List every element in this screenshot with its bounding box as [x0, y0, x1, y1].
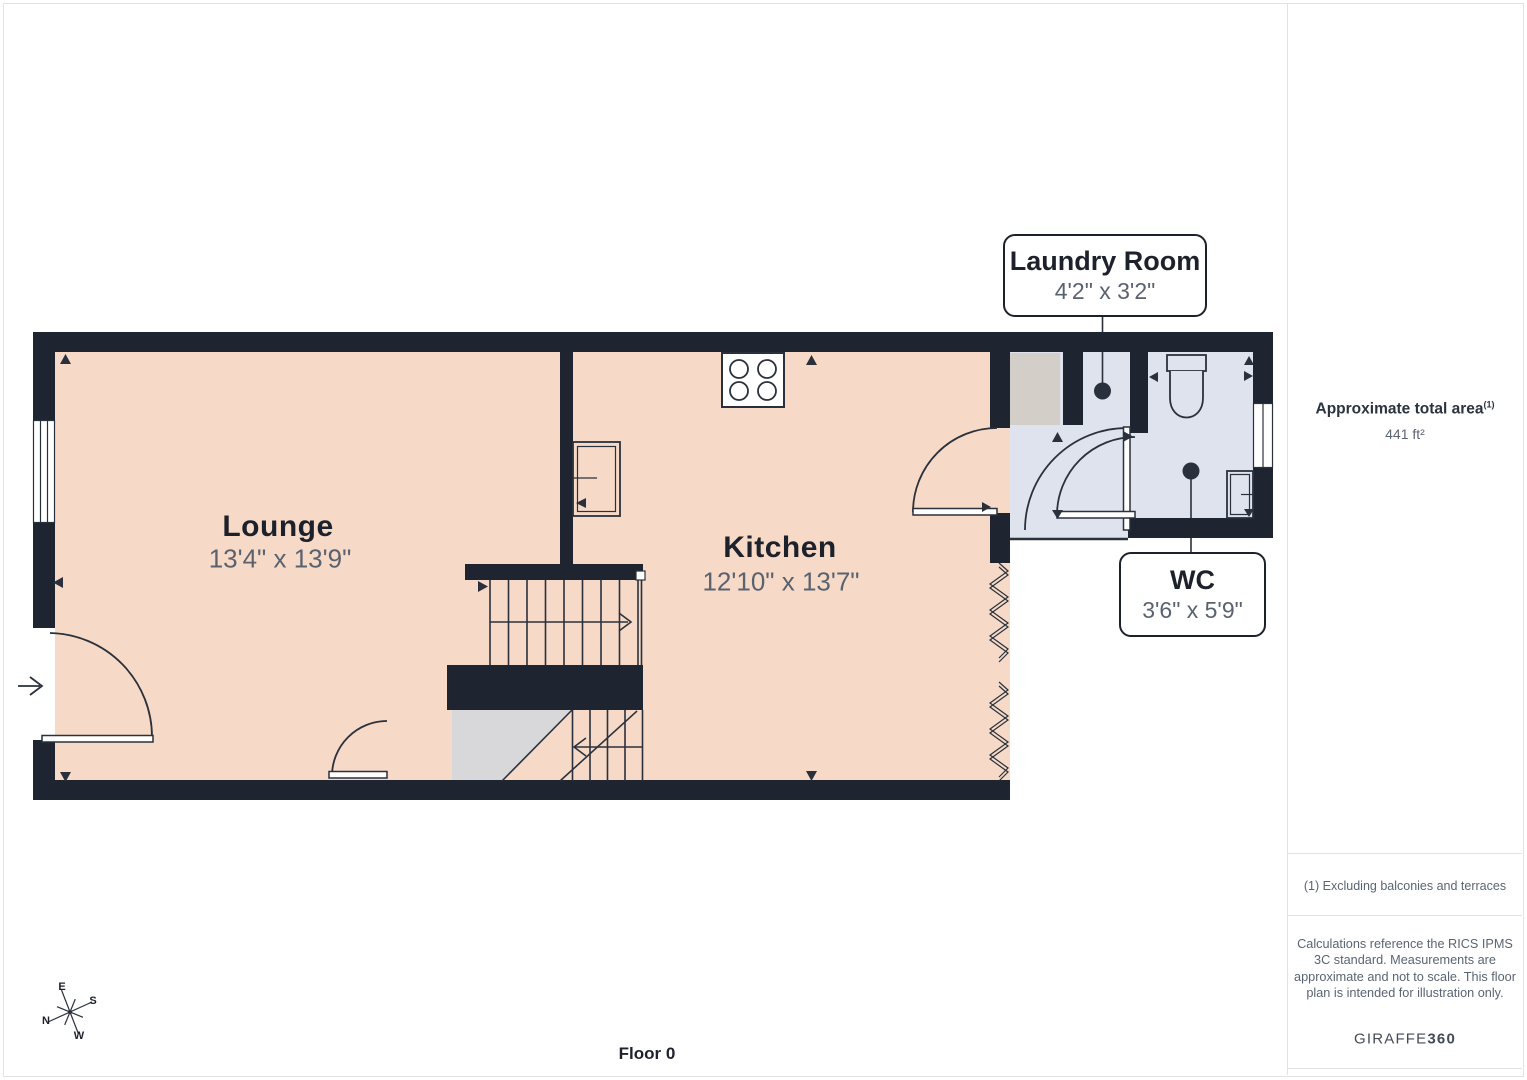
laundry-room-callout: Laundry Room 4'2" x 3'2"	[1003, 234, 1207, 317]
wall-kitchen-right-upper	[990, 332, 1010, 428]
compass-east-label: E	[58, 981, 65, 993]
laundry-room-callout-title: Laundry Room	[1010, 246, 1201, 277]
stove-icon	[722, 353, 784, 407]
compass-west-label: W	[74, 1030, 84, 1042]
laundry-room-callout-dimensions: 4'2" x 3'2"	[1055, 278, 1156, 305]
kitchen-label: Kitchen	[723, 531, 837, 565]
wall-laundry-left	[1063, 352, 1083, 425]
disclaimer: Calculations reference the RICS IPMS 3C …	[1294, 936, 1516, 1001]
wc-callout-dimensions: 3'6" x 5'9"	[1142, 597, 1243, 624]
compass-icon	[48, 990, 92, 1034]
wc-camera-dot	[1183, 463, 1200, 480]
window-right	[1254, 404, 1273, 468]
wall-left-upper	[33, 352, 55, 420]
area-value: 441 ft²	[1385, 426, 1425, 442]
wall-left-middle	[33, 523, 55, 628]
brand-logo: GIRAFFE360	[1354, 1031, 1456, 1048]
stair-notch	[636, 571, 645, 580]
kitchen-dimensions: 12'10" x 13'7"	[702, 567, 859, 598]
wc-callout: WC 3'6" x 5'9"	[1119, 552, 1266, 637]
laundry-camera-dot	[1094, 383, 1111, 400]
hallway-extension-fill	[1010, 518, 1128, 540]
compass-south-label: S	[89, 995, 96, 1007]
wall-stair-top	[465, 564, 643, 580]
lounge-label: Lounge	[222, 510, 333, 544]
wall-kitchen-right-stub	[990, 513, 1010, 563]
brand-name: GIRAFFE	[1354, 1031, 1427, 1048]
window-left	[34, 421, 55, 523]
brand-suffix: 360	[1427, 1031, 1456, 1048]
wall-laundry-right	[1130, 352, 1148, 433]
lounge-dimensions: 13'4" x 13'9"	[209, 544, 352, 575]
area-title-superscript: (1)	[1483, 399, 1494, 409]
stair-landing	[447, 665, 643, 710]
floor-plan-page: Lounge 13'4" x 13'9" Kitchen 12'10" x 13…	[0, 0, 1527, 1080]
wall-right-upper	[1253, 352, 1273, 403]
compass-north-label: N	[42, 1015, 50, 1027]
area-title: Approximate total area(1)	[1316, 399, 1495, 418]
appliance-block	[1010, 353, 1060, 425]
footnote: (1) Excluding balconies and terraces	[1304, 879, 1506, 893]
entrance-arrow-icon	[18, 677, 42, 695]
area-title-text: Approximate total area	[1316, 401, 1484, 418]
wall-top	[33, 332, 1273, 352]
wall-bottom	[33, 780, 1010, 800]
toilet-icon	[1167, 355, 1206, 418]
wc-callout-title: WC	[1170, 565, 1215, 596]
wall-lounge-kitchen-divider	[560, 352, 573, 564]
floor-label: Floor 0	[619, 1044, 676, 1064]
wall-wc-bottom	[1128, 518, 1273, 538]
